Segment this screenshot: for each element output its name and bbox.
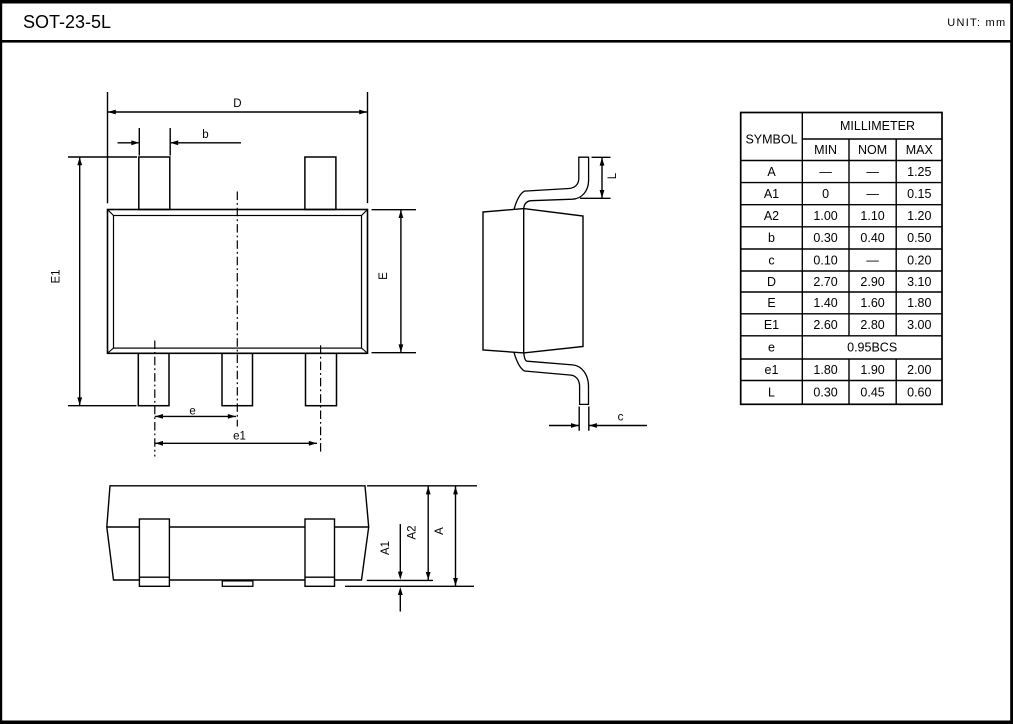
svg-text:E: E [767, 296, 775, 310]
svg-text:D: D [767, 275, 776, 289]
svg-text:A1: A1 [380, 541, 392, 555]
svg-text:b: b [202, 129, 208, 141]
svg-text:e1: e1 [233, 431, 246, 443]
svg-text:0.20: 0.20 [907, 253, 931, 267]
svg-text:0.30: 0.30 [813, 386, 837, 400]
svg-text:A: A [767, 165, 776, 179]
svg-text:3.10: 3.10 [907, 275, 931, 289]
svg-text:2.00: 2.00 [907, 363, 931, 377]
svg-text:c: c [618, 412, 624, 424]
svg-text:0.10: 0.10 [813, 253, 837, 267]
svg-text:1.80: 1.80 [813, 363, 837, 377]
svg-text:E1: E1 [51, 269, 63, 283]
svg-text:SYMBOL: SYMBOL [745, 132, 797, 146]
svg-text:1.90: 1.90 [860, 363, 884, 377]
svg-text:—: — [866, 187, 879, 201]
svg-text:0.60: 0.60 [907, 386, 931, 400]
svg-text:1.00: 1.00 [813, 209, 837, 223]
svg-text:E1: E1 [764, 318, 779, 332]
svg-text:b: b [768, 231, 775, 245]
svg-text:0.45: 0.45 [860, 386, 884, 400]
svg-text:A2: A2 [407, 525, 419, 539]
svg-text:0.30: 0.30 [813, 231, 837, 245]
svg-text:1.10: 1.10 [860, 209, 884, 223]
svg-text:A2: A2 [764, 209, 779, 223]
svg-text:MAX: MAX [906, 143, 934, 157]
svg-text:UNIT: mm: UNIT: mm [947, 17, 1006, 29]
svg-text:2.60: 2.60 [813, 318, 837, 332]
svg-text:MIN: MIN [814, 143, 837, 157]
svg-text:—: — [866, 253, 879, 267]
svg-text:e1: e1 [765, 363, 779, 377]
svg-text:1.60: 1.60 [860, 296, 884, 310]
svg-text:c: c [768, 253, 774, 267]
svg-text:A: A [434, 527, 446, 535]
svg-text:0.50: 0.50 [907, 231, 931, 245]
svg-text:2.70: 2.70 [813, 275, 837, 289]
svg-text:e: e [768, 341, 775, 355]
svg-text:0.95BCS: 0.95BCS [847, 341, 897, 355]
svg-text:1.80: 1.80 [907, 296, 931, 310]
svg-text:0.40: 0.40 [860, 231, 884, 245]
svg-text:E: E [378, 272, 390, 280]
svg-text:D: D [233, 98, 241, 110]
svg-text:2.90: 2.90 [860, 275, 884, 289]
svg-text:L: L [768, 386, 775, 400]
svg-text:—: — [819, 165, 832, 179]
svg-text:3.00: 3.00 [907, 318, 931, 332]
svg-text:MILLIMETER: MILLIMETER [840, 119, 915, 133]
svg-text:SOT-23-5L: SOT-23-5L [23, 12, 111, 32]
svg-text:L: L [607, 172, 619, 179]
svg-text:A1: A1 [764, 187, 779, 201]
svg-text:e: e [189, 406, 195, 418]
svg-text:0.15: 0.15 [907, 187, 931, 201]
svg-text:2.80: 2.80 [860, 318, 884, 332]
svg-text:1.40: 1.40 [813, 296, 837, 310]
svg-text:—: — [866, 165, 879, 179]
svg-text:NOM: NOM [858, 143, 887, 157]
svg-text:1.20: 1.20 [907, 209, 931, 223]
svg-text:1.25: 1.25 [907, 165, 931, 179]
svg-text:0: 0 [822, 187, 829, 201]
